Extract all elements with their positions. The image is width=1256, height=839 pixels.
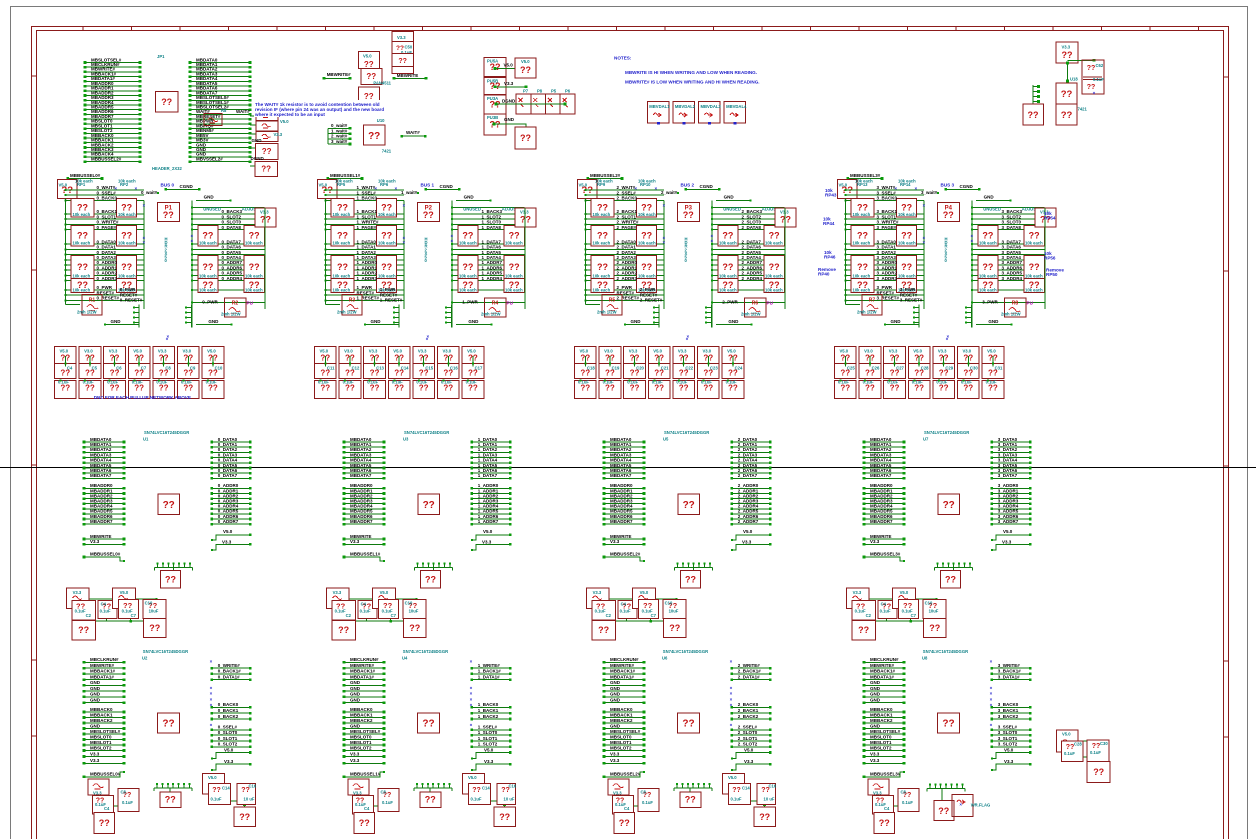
svg-text:??: ?? [988, 369, 998, 378]
svg-text:1_PWR: 1_PWR [462, 299, 478, 304]
svg-text:??: ?? [722, 262, 733, 272]
svg-text:×: × [730, 697, 733, 702]
svg-text:10uF: 10uF [929, 609, 939, 614]
svg-text:10k each: 10k each [593, 287, 611, 292]
svg-text:10 uF: 10 uF [244, 796, 255, 801]
svg-text:WAIT#: WAIT# [236, 109, 250, 114]
svg-text:V5.0: V5.0 [120, 590, 129, 595]
svg-text:10k each: 10k each [719, 287, 737, 292]
svg-text:??: ?? [110, 369, 120, 378]
svg-text:MBSLOT2: MBSLOT2 [870, 745, 892, 750]
svg-text:V3.3: V3.3 [353, 791, 362, 796]
svg-text:??: ?? [202, 262, 213, 272]
svg-text:1_DATA8: 1_DATA8 [482, 225, 502, 230]
svg-text:10k each: 10k each [118, 241, 136, 246]
svg-text:UNUSED: UNUSED [203, 207, 221, 212]
svg-text:MBBACK1: MBBACK1 [90, 712, 113, 717]
svg-text:??: ?? [134, 369, 144, 378]
svg-text:1_BACK1#: 1_BACK1# [478, 669, 502, 674]
svg-text:??: ?? [1066, 744, 1075, 751]
svg-text:??: ?? [938, 806, 949, 816]
svg-text:2_SLOT1: 2_SLOT1 [738, 736, 758, 741]
svg-text:??: ?? [468, 369, 478, 378]
svg-text:??: ?? [685, 795, 696, 805]
svg-text:??: ?? [630, 369, 640, 378]
svg-text:RP5: RP5 [337, 182, 346, 187]
svg-text:??: ?? [338, 625, 349, 635]
svg-text:GND: GND [90, 697, 101, 702]
svg-text:??: ?? [857, 202, 868, 212]
svg-text:C62: C62 [1096, 63, 1104, 68]
svg-text:V5.0: V5.0 [839, 183, 848, 188]
svg-text:×: × [990, 722, 993, 727]
svg-text:10 uF: 10 uF [764, 796, 775, 801]
svg-text:??: ?? [890, 384, 900, 393]
svg-text:MBBACK0: MBBACK0 [870, 707, 893, 712]
svg-text:2_BACK1#: 2_BACK1# [738, 669, 762, 674]
svg-text:PU5B: PU5B [487, 79, 498, 84]
svg-text:2_BACK0: 2_BACK0 [738, 702, 759, 707]
svg-text:RP44: RP44 [823, 221, 835, 226]
svg-text:MBWRITE: MBWRITE [397, 73, 419, 78]
svg-text:0.1uF: 0.1uF [335, 609, 346, 614]
svg-text:??: ?? [728, 384, 738, 393]
svg-text:10k each: 10k each [1025, 241, 1043, 246]
svg-text:??: ?? [77, 262, 88, 272]
svg-text:×: × [210, 685, 213, 690]
svg-text:V3.3: V3.3 [593, 590, 602, 595]
svg-text:??: ?? [914, 369, 924, 378]
svg-text:R5: R5 [609, 298, 616, 304]
svg-text:??: ?? [865, 384, 875, 393]
svg-text:V5.0: V5.0 [521, 59, 530, 64]
svg-text:??: ?? [703, 369, 713, 378]
svg-text:??: ?? [929, 623, 940, 633]
svg-text:3_BACK1: 3_BACK1 [998, 708, 1019, 713]
svg-text:??: ?? [580, 384, 590, 393]
svg-text:×: × [135, 186, 138, 191]
svg-text:U2: U2 [142, 656, 148, 661]
svg-text:MBDATA1#: MBDATA1# [90, 674, 114, 679]
svg-text:??: ?? [619, 818, 630, 828]
svg-text:C4: C4 [884, 806, 890, 811]
svg-text:10k each: 10k each [638, 212, 656, 217]
svg-text:V5.0: V5.0 [728, 775, 737, 780]
svg-text:10k each: 10k each [199, 241, 217, 246]
svg-text:??: ?? [423, 210, 434, 220]
svg-text:??: ?? [468, 384, 478, 393]
svg-text:MBSLOTSEL#: MBSLOTSEL# [90, 729, 121, 734]
svg-text:0_ADDR7: 0_ADDR7 [218, 519, 239, 524]
svg-text:C7: C7 [911, 613, 917, 618]
svg-text:??: ?? [249, 262, 260, 272]
svg-text:MBSLOTSEL#: MBSLOTSEL# [350, 729, 381, 734]
svg-text:GND: GND [610, 697, 621, 702]
svg-text:10k each: 10k each [979, 287, 997, 292]
svg-text:10 uF: 10 uF [504, 796, 515, 801]
svg-text:??: ?? [149, 623, 160, 633]
svg-text:UNUSED: UNUSED [723, 207, 741, 212]
svg-text:×: × [710, 239, 713, 244]
svg-text:V3.3: V3.3 [350, 758, 360, 763]
svg-text:BUS 1: BUS 1 [421, 183, 435, 188]
svg-text:×: × [210, 697, 213, 702]
svg-text:RP40: RP40 [818, 272, 830, 277]
svg-text:??: ?? [337, 202, 348, 212]
svg-text:3_BACK2: 3_BACK2 [998, 714, 1019, 719]
svg-text:??: ?? [364, 60, 374, 69]
svg-text:MBBACK1#: MBBACK1# [90, 669, 116, 674]
svg-text:RP56: RP56 [1044, 256, 1056, 261]
svg-text:2_PAGE#: 2_PAGE# [617, 225, 637, 230]
svg-text:??: ?? [381, 230, 392, 240]
svg-text:SN74LVC16T245DGGR: SN74LVC16T245DGGR [923, 649, 968, 654]
svg-text:??: ?? [77, 230, 88, 240]
svg-text:GND: GND [610, 692, 621, 697]
svg-text:UNUSED: UNUSED [983, 207, 1001, 212]
svg-text:??: ?? [630, 384, 640, 393]
svg-text:??: ?? [472, 787, 481, 794]
svg-text:P6: P6 [565, 89, 571, 94]
svg-text:C4: C4 [104, 806, 110, 811]
svg-text:C2: C2 [86, 613, 92, 618]
svg-text:??: ?? [728, 369, 738, 378]
svg-text:??: ?? [879, 818, 890, 828]
svg-text:??: ?? [509, 230, 520, 240]
svg-text:MBBACK1#: MBBACK1# [610, 669, 636, 674]
svg-text:10k each: 10k each [73, 212, 91, 217]
svg-text:0.1uF: 0.1uF [902, 800, 913, 805]
svg-text:??: ?? [77, 202, 88, 212]
svg-text:MBBACK0: MBBACK0 [350, 707, 373, 712]
svg-text:10k each: 10k each [118, 273, 136, 278]
svg-text:V5.0: V5.0 [59, 183, 68, 188]
svg-text:U7: U7 [923, 437, 929, 442]
svg-text:GND: GND [111, 319, 122, 324]
svg-text:??: ?? [370, 369, 380, 378]
svg-text:C4: C4 [101, 602, 107, 607]
svg-text:×: × [662, 203, 665, 208]
svg-text:??: ?? [982, 262, 993, 272]
svg-text:C8: C8 [381, 790, 387, 795]
svg-text:2_ADDR7: 2_ADDR7 [738, 519, 759, 524]
svg-text:V3.3: V3.3 [1062, 45, 1071, 50]
svg-text:GND: GND [252, 138, 263, 143]
svg-text:×: × [210, 722, 213, 727]
svg-text:0_DATA7: 0_DATA7 [218, 473, 238, 478]
svg-text:10uF: 10uF [149, 609, 159, 614]
svg-text:10k each: 10k each [638, 273, 656, 278]
svg-text:0.1uF: 0.1uF [1090, 750, 1101, 755]
svg-text:0.1uF: 0.1uF [855, 609, 866, 614]
svg-text:NOTES:: NOTES: [614, 56, 632, 61]
svg-text:10k each: 10k each [979, 241, 997, 246]
svg-text:MBBUSSEL1#: MBBUSSEL1# [330, 173, 361, 178]
svg-text:MBSLOT2: MBSLOT2 [90, 745, 112, 750]
svg-text:??: ?? [162, 719, 174, 730]
svg-text:0.1uF: 0.1uF [1093, 77, 1104, 82]
svg-text:??: ?? [249, 230, 260, 240]
svg-text:×: × [990, 685, 993, 690]
svg-text:MBBUSSEL3#: MBBUSSEL3# [850, 173, 881, 178]
svg-text:10k each: 10k each [73, 273, 91, 278]
svg-text:×: × [210, 691, 213, 696]
svg-text:SN74LVC16T245DGGR: SN74LVC16T245DGGR [404, 430, 449, 435]
svg-text:MBCLKRUN#: MBCLKRUN# [350, 657, 379, 662]
svg-text:V5.0: V5.0 [1003, 529, 1013, 534]
svg-text:C30: C30 [1100, 741, 1108, 746]
svg-text:0.1uF: 0.1uF [731, 796, 742, 801]
svg-text:??: ?? [703, 384, 713, 393]
svg-text:×: × [142, 240, 145, 245]
svg-text:C16: C16 [509, 784, 517, 789]
svg-text:??: ?? [597, 202, 608, 212]
svg-text:×: × [730, 722, 733, 727]
svg-text:SN74LVC16T245DGGR: SN74LVC16T245DGGR [664, 430, 709, 435]
svg-text:??: ?? [161, 97, 172, 107]
svg-text:10k each: 10k each [505, 287, 523, 292]
svg-text:SN74LVC16T245DGGR: SN74LVC16T245DGGR [143, 649, 188, 654]
svg-text:MBBUSSEL3#: MBBUSSEL3# [870, 552, 901, 557]
svg-text:??: ?? [368, 131, 380, 142]
svg-text:2_RESET#: 2_RESET# [617, 296, 640, 301]
svg-text:MBSLOT1: MBSLOT1 [870, 740, 892, 745]
svg-text:10k each: 10k each [333, 287, 351, 292]
svg-text:??: ?? [679, 369, 689, 378]
svg-text:10k each: 10k each [853, 287, 871, 292]
svg-text:10k each: 10k each [719, 273, 737, 278]
svg-text:10k each: 10k each [765, 287, 783, 292]
svg-text:??: ?? [597, 230, 608, 240]
svg-text:2_SLOT2: 2_SLOT2 [738, 742, 758, 747]
svg-text:??: ?? [163, 210, 174, 220]
svg-text:1_BACK0: 1_BACK0 [357, 196, 378, 201]
svg-text:GND: GND [610, 686, 621, 691]
svg-text:C7: C7 [391, 613, 397, 618]
svg-text:PAN4511: PAN4511 [373, 81, 391, 86]
svg-text:??: ?? [1028, 110, 1039, 120]
svg-text:C16: C16 [769, 784, 777, 789]
svg-text:GND: GND [208, 319, 219, 324]
svg-text:C50: C50 [405, 45, 413, 50]
svg-text:MBVDAL1: MBVDAL1 [649, 104, 670, 109]
svg-text:3_SSEL#: 3_SSEL# [998, 725, 1018, 730]
svg-text:V5.0: V5.0 [224, 747, 234, 752]
svg-text:U3: U3 [403, 437, 409, 442]
svg-text:0_BACK1: 0_BACK1 [218, 708, 239, 713]
svg-text:MBSLOT0: MBSLOT0 [610, 734, 632, 739]
svg-text:??: ?? [682, 719, 694, 730]
svg-text:MBDATA1#: MBDATA1# [610, 674, 634, 679]
svg-text:P7: P7 [523, 89, 529, 94]
svg-text:MBWRITE#: MBWRITE# [327, 72, 351, 77]
svg-text:0.1uF: 0.1uF [880, 609, 891, 614]
svg-text:PU: PU [1027, 301, 1034, 306]
svg-text:??: ?? [840, 369, 850, 378]
svg-text:??: ?? [85, 384, 95, 393]
svg-text:PU: PU [247, 301, 254, 306]
svg-text:C10: C10 [925, 601, 933, 606]
svg-text:10k each: 10k each [765, 273, 783, 278]
svg-text:??: ?? [943, 500, 955, 511]
svg-text:1_ADDR4: 1_ADDR4 [482, 276, 503, 281]
svg-text:0.1uF: 0.1uF [471, 796, 482, 801]
svg-text:??: ?? [732, 787, 741, 794]
svg-text:3_WRITE#: 3_WRITE# [998, 663, 1021, 668]
svg-text:??: ?? [769, 230, 780, 240]
svg-text:GND: GND [350, 680, 361, 685]
svg-text:RP6: RP6 [380, 182, 389, 187]
svg-text:V5.0: V5.0 [744, 747, 754, 752]
svg-text:MBDATA7: MBDATA7 [870, 473, 892, 478]
svg-text:??: ?? [890, 369, 900, 378]
svg-text:GND: GND [204, 195, 215, 200]
svg-text:??: ?? [419, 384, 429, 393]
svg-text:0_BACK0: 0_BACK0 [218, 702, 239, 707]
svg-text:??: ?? [901, 230, 912, 240]
svg-text:2_BACK0: 2_BACK0 [617, 196, 638, 201]
svg-text:0_SLOT2: 0_SLOT2 [218, 742, 238, 747]
svg-text:3_RESET#: 3_RESET# [900, 298, 923, 303]
svg-text:0_wait#: 0_wait# [141, 190, 158, 195]
svg-text:10k each: 10k each [199, 287, 217, 292]
svg-text:C16: C16 [249, 784, 257, 789]
svg-text:V3.3: V3.3 [484, 759, 494, 764]
svg-text:GND: GND [610, 723, 621, 728]
svg-text:×: × [374, 186, 377, 191]
svg-text:SN74LVC16T245DGGR: SN74LVC16T245DGGR [144, 430, 189, 435]
svg-text:??: ?? [121, 202, 132, 212]
svg-text:MBSLOT1: MBSLOT1 [90, 740, 112, 745]
svg-text:×: × [730, 659, 733, 664]
svg-text:RP2: RP2 [120, 182, 129, 187]
svg-text:PU3A: PU3A [487, 96, 498, 101]
svg-text:??: ?? [165, 575, 176, 585]
svg-text:GND: GND [984, 195, 995, 200]
svg-text:??: ?? [857, 262, 868, 272]
svg-text:U1: U1 [143, 437, 149, 442]
svg-text:GND: GND [728, 319, 739, 324]
svg-text:??: ?? [159, 369, 169, 378]
svg-text:where it expected to be an inp: where it expected to be an input [254, 112, 325, 117]
svg-text:×: × [946, 336, 949, 341]
svg-text:3_RESET#: 3_RESET# [877, 296, 900, 301]
svg-text:MBADDR7: MBADDR7 [90, 519, 113, 524]
svg-text:MBBACK0: MBBACK0 [90, 707, 113, 712]
svg-text:MBBACK2: MBBACK2 [350, 718, 373, 723]
svg-text:0.1uF: 0.1uF [620, 609, 631, 614]
svg-text:??: ?? [963, 384, 973, 393]
svg-text:1_PAGE#: 1_PAGE# [357, 225, 377, 230]
svg-text:GND: GND [90, 680, 101, 685]
svg-text:MBBACK2: MBBACK2 [90, 718, 113, 723]
svg-text:MBBACK1#: MBBACK1# [350, 669, 376, 674]
svg-text:2_ADDR3: 2_ADDR3 [617, 276, 638, 281]
svg-text:MBBUSSEL2#: MBBUSSEL2# [91, 156, 122, 161]
svg-text:10k each: 10k each [459, 241, 477, 246]
svg-text:??: ?? [1061, 110, 1073, 121]
svg-text:×: × [210, 659, 213, 664]
svg-text:MBBACK0: MBBACK0 [610, 707, 633, 712]
svg-text:??: ?? [769, 262, 780, 272]
svg-text:MBDATA7: MBDATA7 [610, 473, 632, 478]
svg-text:MBBUSSEL2#: MBBUSSEL2# [610, 771, 641, 776]
svg-text:RP43: RP43 [825, 193, 837, 198]
svg-text:??: ?? [683, 210, 694, 220]
svg-text:×: × [655, 186, 658, 191]
svg-text:??: ?? [121, 262, 132, 272]
svg-text:U10: U10 [377, 118, 385, 123]
svg-text:MBWRITE: MBWRITE [90, 534, 112, 539]
svg-text:MBADDR7: MBADDR7 [870, 519, 893, 524]
svg-text:MBSLOTSEL#: MBSLOTSEL# [610, 729, 641, 734]
svg-text:??: ?? [1062, 50, 1073, 60]
svg-text:V3.3: V3.3 [853, 590, 862, 595]
svg-text:BUS 0: BUS 0 [161, 183, 175, 188]
svg-text:??: ?? [99, 818, 110, 828]
svg-text:V5.0: V5.0 [319, 183, 328, 188]
svg-text:MBVDAL3: MBVDAL3 [701, 104, 722, 109]
svg-text:??: ?? [409, 623, 420, 633]
svg-text:MBDATA1#: MBDATA1# [870, 674, 894, 679]
svg-text:0_SLOT0: 0_SLOT0 [218, 730, 238, 735]
svg-text:U4: U4 [402, 656, 408, 661]
svg-text:V5.0: V5.0 [483, 529, 493, 534]
svg-text:??: ?? [1093, 767, 1104, 777]
svg-text:MBBUSSEL2#: MBBUSSEL2# [610, 552, 641, 557]
svg-text:1_SLOT1: 1_SLOT1 [478, 736, 498, 741]
svg-text:2mh 1/2W: 2mh 1/2W [1001, 312, 1021, 317]
svg-text:U5: U5 [663, 437, 669, 442]
svg-text:V3.3: V3.3 [90, 751, 100, 756]
svg-text:1_SLOT0: 1_SLOT0 [478, 730, 498, 735]
svg-text:C10: C10 [145, 601, 153, 606]
svg-text:1_BACK2: 1_BACK2 [478, 714, 499, 719]
svg-text:V5.0: V5.0 [1004, 747, 1014, 752]
svg-text:×: × [142, 203, 145, 208]
svg-text:??: ?? [943, 210, 954, 220]
svg-text:R4: R4 [492, 301, 499, 307]
svg-text:10k each: 10k each [505, 273, 523, 278]
svg-text:RP14: RP14 [900, 182, 911, 187]
svg-text:2_SSEL#: 2_SSEL# [738, 725, 758, 730]
svg-text:MBBACK2: MBBACK2 [610, 718, 633, 723]
svg-text:??: ?? [110, 384, 120, 393]
svg-text:2mh 1/2W: 2mh 1/2W [741, 312, 761, 317]
svg-text:??: ?? [462, 230, 473, 240]
svg-text:V5.0: V5.0 [484, 747, 494, 752]
svg-text:10uF: 10uF [409, 609, 419, 614]
svg-text:V5.0: V5.0 [380, 590, 389, 595]
svg-text:MBBUSSEL1#: MBBUSSEL1# [350, 552, 381, 557]
svg-text:DNC FOR EACH PULLUP NETWORK AB: DNC FOR EACH PULLUP NETWORK ABOVE [94, 395, 191, 400]
svg-text:P8: P8 [537, 89, 543, 94]
svg-text:GND: GND [504, 117, 515, 122]
svg-text:3_SLOT0: 3_SLOT0 [998, 730, 1018, 735]
svg-text:C28: C28 [1074, 742, 1082, 747]
svg-text:V3.3: V3.3 [274, 132, 283, 137]
svg-text:MBBACK1: MBBACK1 [870, 712, 893, 717]
svg-text:×: × [470, 685, 473, 690]
svg-text:MBSLOT2: MBSLOT2 [610, 745, 632, 750]
svg-text:C8: C8 [641, 790, 647, 795]
svg-text:0.1uF: 0.1uF [211, 796, 222, 801]
svg-text:10k each: 10k each [333, 241, 351, 246]
svg-text:×: × [114, 186, 117, 191]
svg-text:MBBACK1: MBBACK1 [350, 712, 373, 717]
svg-text:MBBACK1: MBBACK1 [610, 712, 633, 717]
svg-text:V5.0: V5.0 [468, 775, 477, 780]
